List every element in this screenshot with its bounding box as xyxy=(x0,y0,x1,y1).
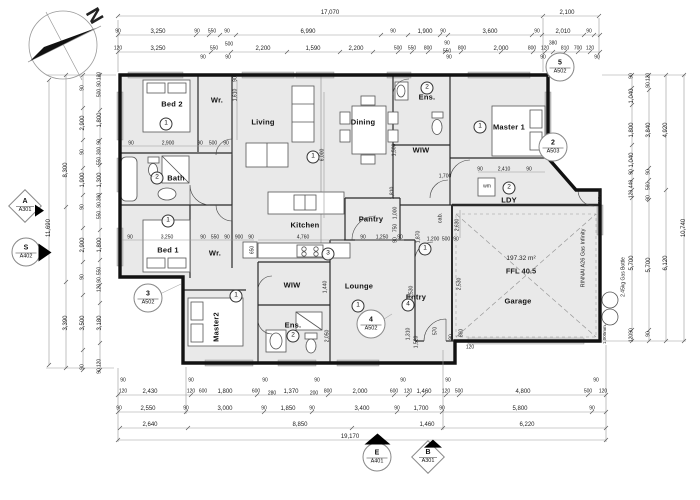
dim-label: 120 xyxy=(98,284,103,292)
dim-label: 120 xyxy=(404,390,412,395)
dim-label: 800 xyxy=(528,47,536,52)
dim-label: 500 xyxy=(442,238,450,243)
dim-label: 2,900 xyxy=(80,237,86,252)
dim-label: 650 xyxy=(251,246,256,254)
dim-label: 90 xyxy=(224,30,230,35)
dim-label: 1,800 xyxy=(217,389,232,395)
dim-label: 90 xyxy=(188,379,194,384)
room-number-badge: 1 xyxy=(162,215,175,228)
dim-label: 3,600 xyxy=(482,29,497,35)
marker-number: A xyxy=(16,198,34,207)
dim-label: 120 xyxy=(466,346,474,351)
dim-label: 1,000 xyxy=(394,207,399,220)
room-number-badge: 2 xyxy=(503,182,516,195)
dim-label: 90 xyxy=(534,30,540,35)
dim-label: 3,500 xyxy=(80,315,86,330)
dim-label: 90 xyxy=(446,56,452,61)
dim-label: 1,870 xyxy=(417,231,422,244)
marker-sheet-code: A402 xyxy=(20,253,33,260)
dim-label: 90 xyxy=(248,236,254,241)
dim-label: 2,200 xyxy=(255,46,270,52)
room-number-badge: 2 xyxy=(287,330,300,343)
dim-label: 90 xyxy=(98,139,103,145)
washing-machine-label: wm xyxy=(483,185,491,190)
dim-label: 2,430 xyxy=(142,389,157,395)
dim-label: 90 xyxy=(127,236,133,241)
dim-label: 800 xyxy=(424,47,432,52)
room-label-bath: Bath xyxy=(167,174,184,182)
dim-label: 5,800 xyxy=(512,406,527,412)
room-label-wiw: WIW xyxy=(413,146,430,154)
dim-label: 90 xyxy=(453,238,459,243)
dim-label: 2,630 xyxy=(456,219,461,232)
dim-label: 1,040 xyxy=(629,152,635,167)
dim-label: 1,520 xyxy=(415,336,420,349)
dim-label: 550 xyxy=(408,47,416,52)
dim-label: 90 xyxy=(540,56,546,61)
dim-label: 120 xyxy=(599,390,607,395)
dim-label: 500 xyxy=(209,142,217,147)
dim-label: 120 xyxy=(442,390,450,395)
dim-label: 1,440 xyxy=(324,281,329,294)
room-label-wr: Wr. xyxy=(209,249,221,257)
dim-label: 1,500 xyxy=(393,144,398,157)
marker-sheet-code: A301 xyxy=(422,458,435,465)
dim-label: 90 xyxy=(128,142,134,147)
dim-label: 6,000 xyxy=(321,149,326,162)
dim-label: 6,990 xyxy=(300,29,315,35)
room-number-badge: 1 xyxy=(474,121,487,134)
dim-label: 90 xyxy=(593,379,599,384)
dim-label: 700 xyxy=(574,47,582,52)
dim-label: 120 xyxy=(98,359,103,367)
dim-label: 1,200 xyxy=(427,238,440,243)
dim-label: 5,700 xyxy=(646,257,652,272)
dim-label: 90 xyxy=(120,379,126,384)
dim-label: 90 xyxy=(589,407,595,412)
marker-sheet-code: A301 xyxy=(19,207,32,214)
dim-label: 90 xyxy=(183,407,189,412)
marker-number: E xyxy=(366,449,388,458)
dim-label: 900 xyxy=(235,236,243,241)
dim-label: 2,010 xyxy=(555,29,570,35)
dim-label: 3,840 xyxy=(646,122,652,137)
dim-label: 1,460 xyxy=(419,422,434,428)
dim-label: 90 xyxy=(444,42,450,47)
dim-label: 550 xyxy=(210,47,218,52)
dim-label: 1,040 xyxy=(629,88,635,103)
dim-label: 90 xyxy=(116,407,122,412)
dim-label: 380 xyxy=(549,42,557,47)
dim-label: 120 xyxy=(586,47,594,52)
dim-label: 90 xyxy=(81,85,86,91)
dim-label: 90 xyxy=(223,142,229,147)
offset-label: 1,000mm. xyxy=(603,324,608,344)
dim-label: 500 xyxy=(225,43,233,48)
dim-label: 90 xyxy=(225,56,231,61)
dim-label: 500 xyxy=(394,47,402,52)
dim-label: 1,900 xyxy=(417,29,432,35)
dim-label: 550 xyxy=(98,157,103,165)
drawing-ref-marker-5-a502: 5A502 xyxy=(546,53,575,82)
dim-label: 1,610 xyxy=(234,89,239,102)
room-number-badge: 3 xyxy=(322,248,335,261)
dim-label: 1,700 xyxy=(413,406,428,412)
dim-label: 90 xyxy=(81,364,86,370)
marker-number: 4 xyxy=(360,316,382,325)
room-number-badge: 1 xyxy=(307,151,320,164)
dim-label: 90 xyxy=(390,30,396,35)
dim-label: 550 xyxy=(98,267,103,275)
dim-label: 90 xyxy=(262,379,268,384)
room-label-ldy: LDY xyxy=(501,196,517,204)
dim-label: 90 xyxy=(314,379,320,384)
dim-label: 90 xyxy=(647,331,652,337)
room-label-wr: Wr. xyxy=(211,96,223,104)
dim-label: 90 xyxy=(234,76,239,82)
dim-label: 2,100 xyxy=(559,10,574,16)
dim-label: 90 xyxy=(224,236,230,241)
dim-label: 2,050 xyxy=(326,330,331,343)
dim-label: 11,690 xyxy=(46,219,52,237)
dim-label: 120 xyxy=(114,47,122,52)
dim-label: 1,250 xyxy=(376,236,389,241)
dim-label: 10,740 xyxy=(681,219,687,237)
dim-label: 90 xyxy=(630,73,635,79)
dim-label: 120 xyxy=(647,73,652,81)
dim-label: 17,070 xyxy=(321,10,339,16)
room-label-garage: Garage xyxy=(504,297,531,305)
dim-label: 1,900 xyxy=(80,172,86,187)
dim-label: 120 xyxy=(541,47,549,52)
dim-label: 550 xyxy=(208,30,216,35)
room-label-master2: Master2 xyxy=(212,312,220,342)
dim-label: 300 xyxy=(98,193,103,201)
dim-label: 3,250 xyxy=(150,46,165,52)
dim-label: 6,120 xyxy=(663,255,669,270)
dim-label: 90 xyxy=(397,236,403,241)
dim-label: 5,700 xyxy=(629,255,635,270)
marker-sheet-code: A503 xyxy=(547,148,560,155)
dim-label: 90 xyxy=(194,30,200,35)
dim-label: 1,370 xyxy=(283,389,298,395)
room-label-living: Living xyxy=(251,118,274,126)
dim-label: 90 xyxy=(115,30,121,35)
dim-label: 300 xyxy=(98,147,103,155)
marker-number: 2 xyxy=(542,139,564,148)
dim-label: 90 xyxy=(647,195,652,201)
dim-label: 2,900 xyxy=(80,115,86,130)
dim-label: 3,250 xyxy=(150,29,165,35)
dim-label: 90 xyxy=(197,142,203,147)
dim-label: 90 xyxy=(309,407,315,412)
dim-label: 500 xyxy=(584,390,592,395)
dim-label: 1,300 xyxy=(97,172,103,187)
dim-label: 550 xyxy=(98,211,103,219)
dim-label: 90 xyxy=(586,30,592,35)
dim-label: 600 xyxy=(252,390,260,395)
dim-label: 1,590 xyxy=(305,46,320,52)
dim-label: 1,800 xyxy=(97,112,103,127)
room-label-dining: Dining xyxy=(351,118,376,126)
dim-label: 2,900 xyxy=(162,142,175,147)
dim-label: 3,000 xyxy=(217,406,232,412)
room-number-badge: 1 xyxy=(419,243,432,256)
dim-label: 120 xyxy=(630,190,635,198)
dim-label: 90 xyxy=(200,56,206,61)
dim-label: 120 xyxy=(187,390,195,395)
marker-sheet-code: A502 xyxy=(554,68,567,75)
drawing-ref-marker-s-a402: SA402 xyxy=(12,238,41,267)
dim-label: 90 xyxy=(440,30,446,35)
room-label-kitchen: Kitchen xyxy=(291,221,320,229)
dim-label: 90 xyxy=(647,169,652,175)
marker-number: 3 xyxy=(137,290,159,299)
dim-label: 3,400 xyxy=(354,406,369,412)
dim-label: 4,920 xyxy=(663,122,669,137)
dim-label: 90 xyxy=(81,204,86,210)
room-label-pantry: Pantry xyxy=(359,215,384,223)
dim-label: 440 xyxy=(630,180,635,188)
room-label-wiw: WIW xyxy=(284,281,301,289)
dim-label: 90 xyxy=(630,169,635,175)
dim-label: 2,550 xyxy=(140,406,155,412)
dim-label: 500 xyxy=(98,89,103,97)
ffl-label: FFL 40.5 xyxy=(506,267,536,275)
room-label-lounge: Lounge xyxy=(345,282,373,290)
dim-label: 1,850 xyxy=(280,406,295,412)
dim-label: 90 xyxy=(81,274,86,280)
dim-label: 90 xyxy=(81,149,86,155)
dim-label: 3,250 xyxy=(161,236,174,241)
gas-bottle-label: 2.45kg Gas Bottle xyxy=(622,257,627,297)
dim-label: 810 xyxy=(561,47,569,52)
dim-label: 570 xyxy=(434,327,439,335)
drawing-ref-marker-3-a502: 3A502 xyxy=(134,284,163,313)
dim-label: 1,800 xyxy=(629,122,635,137)
dim-label: 90 xyxy=(394,407,400,412)
dim-label: 2,000 xyxy=(352,389,367,395)
dim-label: 90 xyxy=(98,368,103,374)
dim-label: 750 xyxy=(394,224,399,232)
drawing-ref-marker-4-a502: 4A502 xyxy=(357,310,386,339)
dim-label: 90 xyxy=(439,407,445,412)
dim-label: 90 xyxy=(594,56,600,61)
dim-label: 19,170 xyxy=(341,434,359,440)
dim-label: 800 xyxy=(458,47,466,52)
dim-label: 200 xyxy=(310,392,318,397)
dim-label: 90 xyxy=(526,168,532,173)
dim-label: 600 xyxy=(390,390,398,395)
gas-heater-label: RINNAI A26 Gas Infinity xyxy=(581,229,587,288)
dim-label: 1,800 xyxy=(97,237,103,252)
marker-number: 5 xyxy=(549,59,571,68)
dim-label: 560 xyxy=(647,182,652,190)
room-label-bed-2: Bed 2 xyxy=(161,100,182,108)
cabinet-label: cab. xyxy=(438,213,444,223)
dim-label: 2,530 xyxy=(458,278,463,291)
marker-sheet-code: A401 xyxy=(371,458,384,465)
dim-label: 90 xyxy=(647,82,652,88)
dim-label: 90 xyxy=(98,277,103,283)
dim-label: 2,000 xyxy=(493,46,508,52)
dim-label: 3,180 xyxy=(97,315,103,330)
offset-label: 300mm. xyxy=(598,188,603,204)
dim-label: 4,760 xyxy=(297,236,310,241)
dim-label: 90 xyxy=(477,168,483,173)
room-number-badge: 1 xyxy=(160,118,173,131)
dim-label: 1,700 xyxy=(439,175,452,180)
dim-label: 600 xyxy=(199,390,207,395)
room-number-badge: 2 xyxy=(421,82,434,95)
floor-plan-page: 17,0702,100903,25090550906,990901,900903… xyxy=(0,0,700,500)
drawing-ref-marker-e-a401: EA401 xyxy=(363,443,392,472)
dim-label: 4,800 xyxy=(515,389,530,395)
dim-label: 6,220 xyxy=(519,422,534,428)
dim-label: 120 xyxy=(630,334,635,342)
dim-label: 3,390 xyxy=(63,315,69,330)
dim-label: 120 xyxy=(98,72,103,80)
dim-label: 800 xyxy=(324,390,332,395)
marker-sheet-code: A502 xyxy=(142,299,155,306)
dim-label: 550 xyxy=(211,236,219,241)
dim-label: 90 xyxy=(200,236,206,241)
dim-label: 280 xyxy=(268,392,276,397)
area-label: 197.32 m² xyxy=(506,256,535,263)
dim-label: 860 xyxy=(460,329,465,337)
room-number-badge: 4 xyxy=(402,299,415,312)
dim-label: 90 xyxy=(261,407,267,412)
dim-label: 90 xyxy=(400,379,406,384)
dim-label: 2,410 xyxy=(498,168,511,173)
dim-label: 90 xyxy=(450,334,455,340)
room-label-bed-1: Bed 1 xyxy=(157,246,178,254)
dim-label: 90 xyxy=(445,379,451,384)
drawing-ref-marker-2-a503: 2A503 xyxy=(539,133,568,162)
dim-label: 500 xyxy=(455,390,463,395)
dim-label: 2,640 xyxy=(142,422,157,428)
dim-label: 90 xyxy=(98,202,103,208)
dim-label: 1,460 xyxy=(416,389,431,395)
dim-label: 1,810 xyxy=(391,187,396,200)
room-label-master-1: Master 1 xyxy=(493,123,525,131)
dim-label: 8,300 xyxy=(63,162,69,177)
marker-sheet-code: A502 xyxy=(365,325,378,332)
marker-number: S xyxy=(15,244,37,253)
room-number-badge: 2 xyxy=(151,172,164,185)
marker-number: B xyxy=(419,449,437,458)
room-label-ens: Ens. xyxy=(285,321,302,329)
room-number-badge: 1 xyxy=(230,290,243,303)
dim-label: 90 xyxy=(360,236,366,241)
dim-label: 90 xyxy=(98,81,103,87)
dim-label: 120 xyxy=(119,390,127,395)
dim-label: 8,850 xyxy=(292,422,307,428)
dim-label: 1,310 xyxy=(407,328,412,341)
dim-label: 2,200 xyxy=(348,46,363,52)
floor-plan-drawing xyxy=(0,0,700,500)
